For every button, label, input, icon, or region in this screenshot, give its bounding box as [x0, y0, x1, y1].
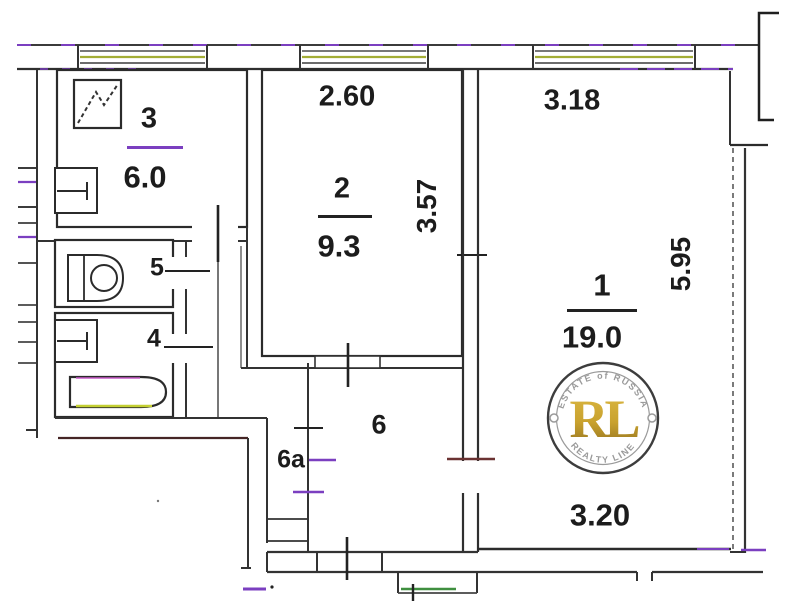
bathtub-icon — [70, 377, 166, 407]
room2-number-label: 2 — [334, 175, 350, 204]
window-room3-icon — [78, 45, 207, 69]
washbasin-icon — [55, 320, 97, 362]
room3-area-label: 6.0 — [123, 162, 166, 193]
window-room1-icon — [533, 45, 695, 69]
floor-plan-page: ESTATE of RUSSIA REALTY LINE RL 2.60 3.1… — [0, 0, 800, 603]
watermark-left-dot-icon — [550, 414, 558, 422]
room2-walls — [241, 70, 487, 387]
stove-icon — [74, 80, 121, 128]
room1-underline — [567, 309, 637, 312]
room6-number-label: 6 — [371, 412, 386, 439]
room3-underline — [127, 146, 183, 149]
watermark-stamp: ESTATE of RUSSIA REALTY LINE RL — [548, 363, 658, 473]
room5-number-label: 5 — [150, 256, 164, 281]
floor-plan-drawing: ESTATE of RUSSIA REALTY LINE RL — [0, 0, 800, 603]
right-outer-wall — [730, 71, 768, 553]
kitchen-door-tick-marker — [218, 205, 241, 418]
dim-room2-width: 2.60 — [319, 83, 375, 112]
room1-area-label: 19.0 — [562, 322, 622, 353]
room1-number-label: 1 — [593, 270, 610, 301]
window-room2-icon — [300, 45, 428, 69]
toilet-icon — [68, 255, 123, 301]
rl-monogram: RL — [569, 389, 638, 449]
neighbor-balcony-bracket — [759, 13, 779, 120]
dim-room1-depth: 5.95 — [667, 237, 695, 292]
room3-number-label: 3 — [141, 105, 157, 134]
room6a-number-label: 6a — [277, 448, 305, 473]
room4-number-label: 4 — [147, 327, 161, 352]
entrance-porch — [398, 573, 477, 601]
room2-underline — [318, 215, 372, 218]
hallway-lower-left-boundary — [58, 438, 274, 589]
dim-room2-depth: 3.57 — [413, 179, 441, 234]
left-outer-wall — [18, 70, 37, 438]
kitchen-sink-icon — [55, 168, 97, 213]
dim-room1-width-bottom: 3.20 — [570, 500, 630, 531]
dim-room1-width: 3.18 — [544, 87, 600, 116]
room2-area-label: 9.3 — [317, 231, 360, 262]
entrance-and-bottom-walls — [267, 537, 763, 581]
watermark-right-dot-icon — [648, 414, 656, 422]
